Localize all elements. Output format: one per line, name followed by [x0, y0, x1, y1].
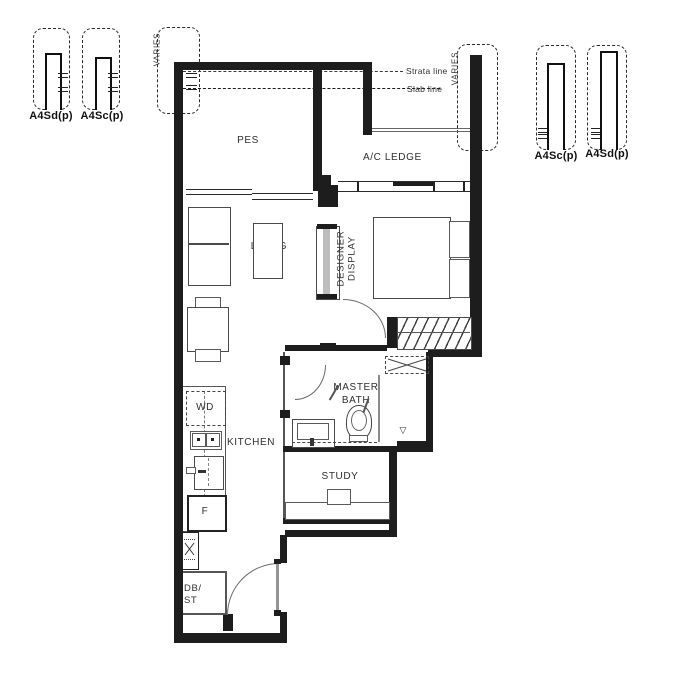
entry-door-hinge: [274, 610, 281, 616]
slab-line-label: Slab line: [407, 84, 467, 95]
entry-door-leaf: [276, 562, 279, 614]
hose-reel-riser: [182, 532, 199, 570]
wall-bath-door-stub: [280, 356, 290, 365]
dbst-closet-bottom: [183, 613, 227, 615]
toilet-bowl: [351, 410, 367, 431]
wall-bath-top-stub: [320, 343, 336, 351]
legend-label-a4sc-right: A4Sc(p): [532, 150, 580, 162]
wall-tick: [58, 73, 68, 78]
bedroom-window-band: [338, 181, 470, 192]
room-label-pes: PES: [231, 134, 265, 147]
designer-display-label-line1: DESIGNER: [336, 224, 347, 294]
wall-tick: [591, 134, 600, 139]
shower-screen: [378, 375, 380, 442]
designer-display-label-line2: DISPLAY: [347, 224, 358, 294]
wall-entry-stub: [223, 614, 233, 631]
varies-label-left: VARIES: [153, 30, 162, 70]
wall-step-right: [428, 350, 482, 357]
washer-dryer-label: WD: [186, 401, 224, 414]
dbst-label: DB/ ST: [184, 583, 212, 608]
dbst-label-line1: DB/: [184, 583, 202, 594]
bed: [373, 217, 451, 299]
wall-tick: [538, 134, 547, 139]
room-label-study: STUDY: [319, 470, 361, 483]
pes-window: [252, 193, 313, 200]
bedroom-door-arc: [343, 299, 386, 338]
riser-x-symbol: [183, 533, 196, 565]
bowtie-symbol: [386, 357, 428, 373]
pillow: [449, 221, 470, 258]
wall-top: [174, 62, 364, 70]
display-cap: [317, 224, 337, 229]
wall-bath-left: [283, 352, 285, 446]
bath-cabinet: [385, 356, 429, 374]
wall-bath-top: [285, 345, 387, 351]
entry-door-jamb: [274, 559, 281, 564]
bath-door-arc: [295, 365, 326, 400]
slab-line: [183, 88, 440, 89]
wardrobe-rail: [397, 332, 470, 333]
sink-drain: [211, 438, 214, 441]
floor-plan-canvas: A4Sd(p) A4Sc(p) A4Sc(p) A4Sd(p) VARIES V…: [0, 0, 680, 673]
oven-knob: [198, 470, 206, 473]
ledge-line: [372, 128, 470, 132]
wall-entry-right-upper: [280, 535, 287, 563]
wall-pes-right: [313, 70, 322, 190]
entry-door-arc: [227, 563, 279, 615]
dining-chair: [195, 349, 221, 362]
window-mullion: [433, 182, 435, 191]
room-label-master-bath: MASTER BATH: [327, 381, 385, 407]
strata-line-label: Strata line: [406, 66, 466, 77]
wall-corner-block: [318, 185, 338, 207]
dbst-label-line2: ST: [184, 595, 197, 606]
wardrobe: [397, 317, 472, 350]
room-label-ac-ledge: A/C LEDGE: [363, 151, 429, 164]
window-mullion: [463, 182, 465, 191]
toilet-base: [349, 435, 368, 442]
wall-study-right: [389, 446, 397, 537]
floor-trap-icon: ▽: [395, 425, 411, 437]
sofa-cushion-line: [188, 243, 229, 245]
wall-tick: [108, 73, 118, 78]
fridge-label: F: [187, 505, 223, 518]
shower-kerb-line: [292, 442, 377, 443]
sink-drain: [197, 438, 200, 441]
coffee-table: [253, 223, 283, 279]
legend-label-a4sd-right: A4Sd(p): [583, 148, 631, 160]
legend-wall-bar: [600, 51, 618, 150]
room-label-kitchen: KITCHEN: [225, 436, 277, 449]
wall-tick: [186, 73, 197, 78]
wall-tick: [58, 87, 68, 92]
wall-step-below-study: [285, 530, 397, 537]
legend-wall-bar: [547, 63, 565, 150]
window-frame-segment: [393, 182, 433, 186]
pillow: [449, 259, 470, 298]
oven-handle: [186, 467, 196, 474]
wall-right-column: [470, 55, 482, 357]
wall-bath-door-stub: [280, 410, 290, 418]
legend-wall-bar: [45, 53, 62, 110]
legend-label-a4sd-left: A4Sd(p): [26, 110, 76, 122]
cooktop-unit: [194, 456, 224, 490]
wall-bottom: [174, 633, 287, 643]
pes-window: [186, 189, 252, 195]
sofa: [188, 207, 231, 286]
wall-wardrobe-side: [387, 317, 397, 348]
legend-wall-bar: [95, 57, 112, 110]
window-mullion: [357, 182, 359, 191]
dbst-closet-top: [183, 571, 227, 573]
wall-pier-top-right: [363, 62, 372, 135]
wall-tick: [591, 128, 600, 133]
study-chair: [327, 489, 351, 505]
wall-tick: [538, 128, 547, 133]
wall-tick: [108, 87, 118, 92]
dining-table: [187, 307, 229, 352]
legend-label-a4sc-left: A4Sc(p): [79, 110, 125, 122]
cooktop-centerline: [208, 458, 209, 486]
display-cap: [317, 294, 337, 299]
